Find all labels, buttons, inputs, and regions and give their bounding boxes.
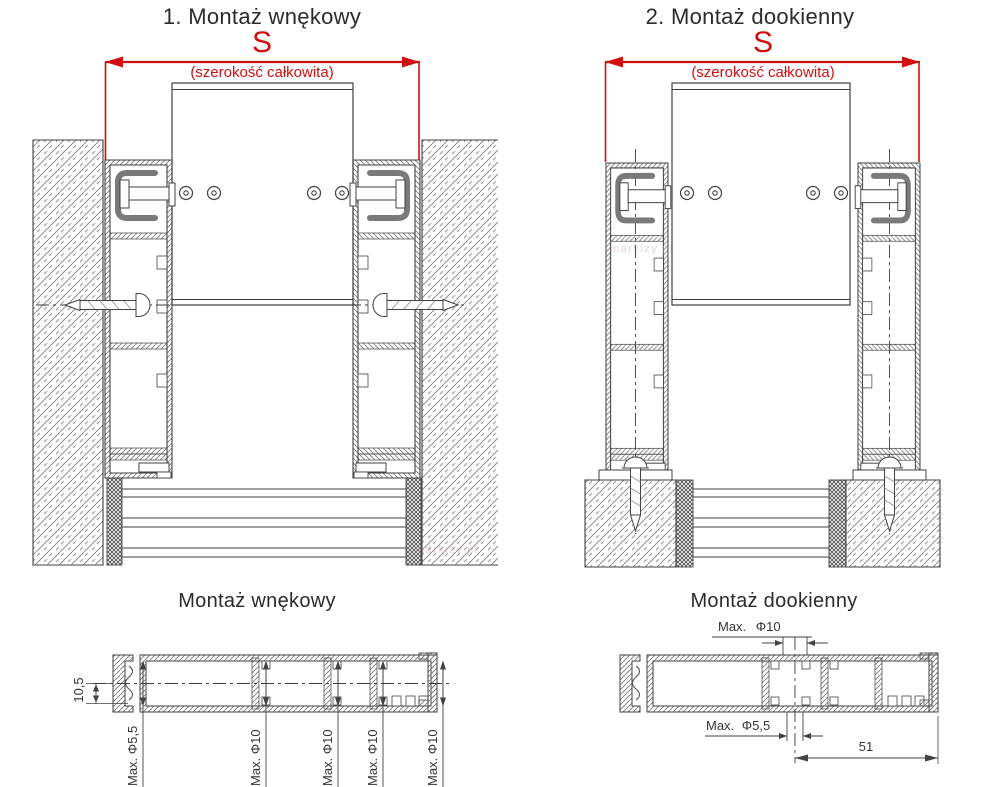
wall-right — [422, 140, 498, 565]
profile2-right-cap — [920, 653, 938, 712]
profile-recess — [86, 653, 452, 787]
profile1-spring — [126, 666, 133, 700]
profile-surface — [620, 637, 938, 764]
diagram-recess-section — [33, 57, 498, 566]
profile1-right-cap — [419, 653, 437, 712]
top-hole-label: Max. Φ10 — [718, 620, 781, 634]
profile2-notches — [771, 661, 924, 706]
blind-panel-2 — [672, 83, 850, 305]
dim-height-label: 10,5 — [72, 670, 86, 710]
hole-label-3: Max. Φ10 — [321, 714, 335, 786]
blind-panel-1 — [172, 83, 353, 305]
guide-rail-right-1 — [350, 160, 420, 478]
watermark-2: markizy.pl — [415, 544, 479, 556]
profile2-left-cap — [620, 655, 640, 712]
dim-s-sublabel-1: (szerokość całkowita) — [112, 65, 412, 82]
window-frame-1 — [107, 478, 421, 565]
technical-drawing-page: 1. Montaż wnękowy 2. Montaż dookienny S … — [0, 0, 1000, 787]
hole-label-1: Max. Φ5,5 — [126, 714, 140, 786]
dimension-max10 — [712, 637, 828, 655]
guide-rail-right-2 — [855, 163, 920, 478]
bottom-hole-label: Max. Φ5,5 — [706, 719, 770, 733]
profile2-dividers — [762, 658, 882, 709]
dim-s-label-2: S — [613, 26, 913, 59]
wall-left — [33, 140, 103, 565]
profile2-spring — [633, 666, 640, 700]
guide-rail-left-2 — [606, 163, 671, 478]
dim-s-label-1: S — [112, 26, 412, 59]
hole-label-4: Max. Φ10 — [366, 714, 380, 786]
guide-rail-left-1 — [105, 160, 175, 478]
line-art — [0, 0, 1000, 787]
diagram-surface-section — [585, 57, 940, 568]
hole-label-2: Max. Φ10 — [249, 714, 263, 786]
hole-label-5: Max. Φ10 — [426, 714, 440, 786]
watermark-1: markizy.pl — [610, 243, 674, 255]
dim-s-sublabel-2: (szerokość całkowita) — [613, 65, 913, 82]
title-profile-surface: Montaż dookienny — [624, 590, 924, 612]
title-profile-recess: Montaż wnękowy — [107, 590, 407, 612]
window-frame-2 — [693, 489, 829, 557]
width-51-label: 51 — [845, 740, 887, 754]
